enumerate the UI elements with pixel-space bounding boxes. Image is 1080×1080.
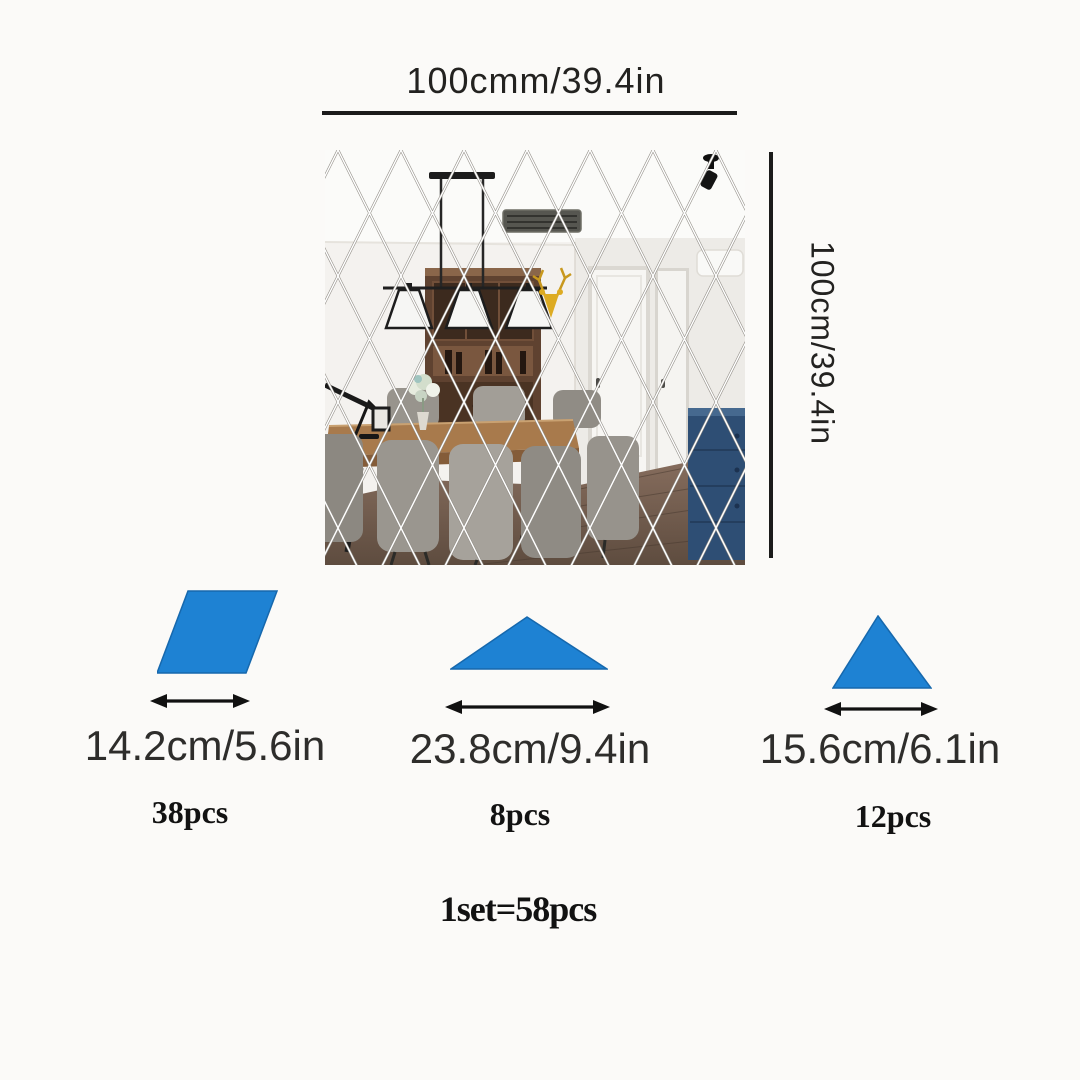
width-arrow-icon [824, 697, 938, 721]
wide-triangle-piece-icon [450, 616, 608, 671]
tall-triangle-piece-icon [832, 615, 932, 689]
piece-count-label: 12pcs [743, 798, 1043, 835]
width-dimension-line [322, 111, 737, 115]
diamond-grid-overlay [325, 150, 745, 565]
product-infographic: 100cmm/39.4in [0, 0, 1080, 1080]
set-total-label: 1set=58pcs [368, 888, 668, 930]
wall-height-label: 100cm/39.4in [804, 241, 841, 445]
width-arrow-icon [150, 689, 250, 713]
piece-size-label: 15.6cm/6.1in [715, 725, 1045, 773]
piece-size-label: 23.8cm/9.4in [365, 725, 695, 773]
piece-size-label: 14.2cm/5.6in [40, 722, 370, 770]
mirror-wall-preview [325, 150, 745, 565]
wall-width-label: 100cmm/39.4in [336, 60, 736, 102]
piece-count-label: 8pcs [370, 796, 670, 833]
width-arrow-icon [445, 695, 610, 719]
rhombus-piece-icon [157, 590, 279, 674]
height-dimension-line [769, 152, 773, 558]
piece-count-label: 38pcs [40, 794, 340, 831]
